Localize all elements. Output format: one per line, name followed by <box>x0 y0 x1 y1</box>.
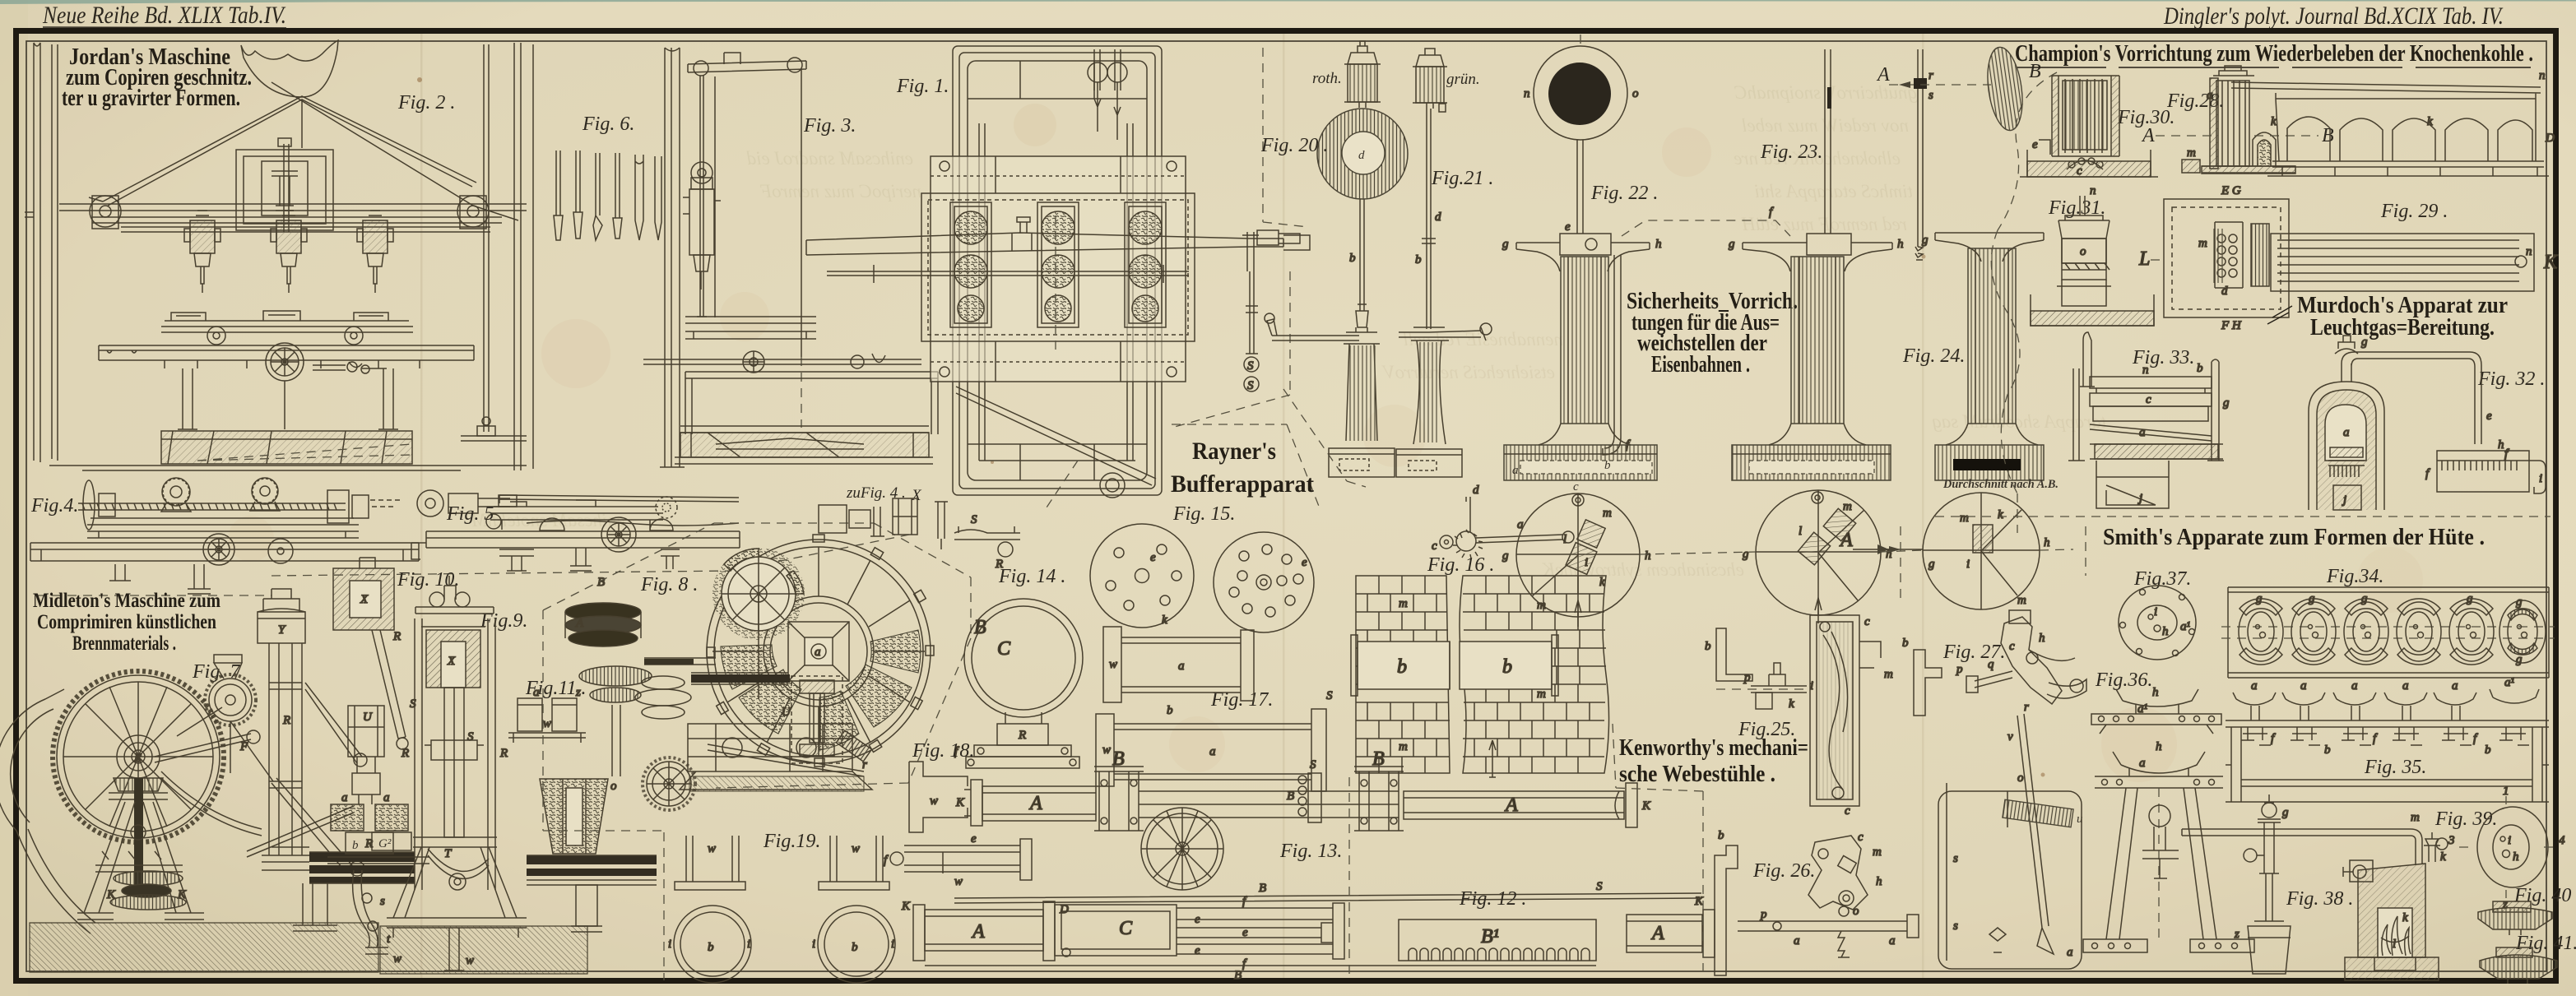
svg-text:e: e <box>2486 410 2492 423</box>
svg-text:sche Webestühle .: sche Webestühle . <box>1619 762 1775 787</box>
svg-text:a: a <box>533 686 540 699</box>
svg-text:g: g <box>2361 592 2368 605</box>
svg-text:d: d <box>1358 149 1365 162</box>
svg-text:a: a <box>383 791 390 804</box>
svg-text:m: m <box>1843 500 1852 513</box>
svg-text:tarappA shcodruM sag: tarappA shcodruM sag <box>1932 411 2106 432</box>
svg-text:o: o <box>2080 245 2086 258</box>
svg-text:s: s <box>1953 920 1958 933</box>
svg-text:a: a <box>815 646 821 659</box>
svg-text:e: e <box>1565 220 1571 234</box>
svg-text:roth.: roth. <box>1312 70 1342 87</box>
svg-text:h: h <box>2513 850 2519 864</box>
svg-text:n: n <box>2090 184 2096 197</box>
svg-text:a¹: a¹ <box>2137 702 2148 716</box>
svg-text:Bufferapparat: Bufferapparat <box>1171 470 1314 498</box>
svg-text:K: K <box>901 900 911 913</box>
svg-text:m: m <box>1960 512 1969 525</box>
svg-text:m: m <box>1873 845 1882 859</box>
svg-text:Neue Reihe Bd. XLIX Tab.IV.: Neue Reihe Bd. XLIX Tab.IV. <box>42 2 286 29</box>
svg-text:Fig. 1.: Fig. 1. <box>896 76 949 97</box>
svg-text:d: d <box>1473 484 1479 497</box>
svg-text:Fig. 29 .: Fig. 29 . <box>2380 201 2448 222</box>
svg-text:m: m <box>1399 740 1408 753</box>
svg-text:g: g <box>2309 592 2315 605</box>
svg-text:p: p <box>1743 671 1751 684</box>
svg-text:S: S <box>971 513 977 526</box>
svg-text:neripoC muz nemroF: neripoC muz nemroF <box>759 181 921 202</box>
svg-text:Fig.4.: Fig.4. <box>30 495 78 517</box>
svg-text:E: E <box>133 752 142 765</box>
svg-text:Fig. 38 .: Fig. 38 . <box>2286 888 2353 910</box>
svg-text:A: A <box>1504 794 1518 816</box>
svg-text:i: i <box>812 938 815 951</box>
svg-text:K: K <box>106 888 116 901</box>
svg-text:g: g <box>2256 592 2263 605</box>
svg-text:b: b <box>708 941 714 954</box>
svg-text:b: b <box>1502 656 1512 678</box>
svg-text:i: i <box>2508 834 2511 847</box>
svg-text:F H: F H <box>2221 319 2242 332</box>
svg-text:b: b <box>1705 640 1711 653</box>
svg-text:Fig.19.: Fig.19. <box>763 831 820 852</box>
svg-text:a: a <box>1794 934 1800 947</box>
svg-text:a: a <box>2139 757 2146 770</box>
svg-text:a¹: a¹ <box>2180 620 2191 633</box>
svg-text:Rayner's: Rayner's <box>1192 438 1276 465</box>
svg-text:e: e <box>1150 551 1156 564</box>
svg-text:b: b <box>352 839 359 852</box>
svg-text:w: w <box>1109 658 1117 671</box>
svg-text:ter u gravirter Formen.: ter u gravirter Formen. <box>62 86 240 111</box>
svg-text:c: c <box>1864 615 1870 628</box>
svg-text:Fig. 2 .: Fig. 2 . <box>397 92 455 113</box>
svg-text:K: K <box>2543 252 2559 273</box>
svg-text:S: S <box>1310 758 1316 771</box>
svg-text:A: A <box>1876 64 1890 86</box>
svg-text:o: o <box>1853 905 1859 918</box>
svg-text:i: i <box>1585 556 1588 569</box>
svg-text:a: a <box>341 791 348 804</box>
svg-text:S: S <box>467 730 474 744</box>
svg-text:i: i <box>891 938 894 951</box>
svg-text:Fig. 10.: Fig. 10. <box>397 569 459 591</box>
svg-text:i: i <box>668 938 671 951</box>
svg-text:g: g <box>2282 806 2289 819</box>
svg-text:k: k <box>1998 508 2003 521</box>
svg-text:i: i <box>1810 679 1813 693</box>
svg-text:n: n <box>2539 69 2546 82</box>
svg-text:w: w <box>466 954 474 967</box>
svg-text:v: v <box>2007 730 2013 744</box>
svg-text:e: e <box>1242 926 1248 939</box>
svg-text:Fig. 13.: Fig. 13. <box>1279 841 1342 862</box>
svg-text:b: b <box>1397 656 1407 678</box>
svg-text:Fig. 27.: Fig. 27. <box>1942 642 2005 663</box>
svg-text:1: 1 <box>2503 785 2509 798</box>
svg-text:etsiehrehciS nerutrroV: etsiehrehciS nerutrroV <box>1381 362 1555 382</box>
svg-text:l: l <box>1799 525 1802 538</box>
svg-text:g: g <box>2516 653 2523 666</box>
svg-text:a¹: a¹ <box>2504 676 2515 689</box>
svg-text:g: g <box>1929 558 1935 571</box>
svg-text:w: w <box>393 952 401 966</box>
svg-text:red nemroF muz etüH: red nemroF muz etüH <box>1741 214 1907 234</box>
svg-text:B: B <box>974 617 986 638</box>
svg-text:w: w <box>930 794 938 808</box>
svg-text:c: c <box>1845 804 1850 818</box>
svg-text:g: g <box>2467 592 2473 605</box>
svg-text:e: e <box>1195 944 1200 957</box>
svg-text:p: p <box>1956 663 1963 676</box>
svg-text:g: g <box>2223 396 2230 410</box>
svg-text:c: c <box>1432 540 1437 553</box>
svg-text:m: m <box>2017 594 2026 607</box>
svg-text:Fig. 22 .: Fig. 22 . <box>1590 183 1658 204</box>
svg-text:n: n <box>1524 87 1530 100</box>
svg-text:4: 4 <box>2559 834 2565 847</box>
svg-text:Fig. 12 .: Fig. 12 . <box>1459 888 1526 910</box>
svg-text:B: B <box>1259 882 1266 895</box>
svg-text:m: m <box>1603 507 1612 520</box>
svg-text:h: h <box>1655 238 1662 251</box>
svg-text:k: k <box>1789 697 1794 711</box>
svg-text:r: r <box>1929 69 1933 82</box>
svg-text:A: A <box>1028 793 1042 814</box>
svg-text:b: b <box>1349 252 1356 265</box>
svg-text:Fig.36.: Fig.36. <box>2095 669 2152 691</box>
svg-text:b: b <box>852 941 858 954</box>
svg-text:d: d <box>2221 285 2228 298</box>
svg-text:Fig. 18.: Fig. 18. <box>912 740 974 762</box>
svg-text:i: i <box>747 938 750 951</box>
svg-text:k: k <box>2427 115 2433 128</box>
svg-text:a: a <box>1178 660 1185 673</box>
svg-text:Fig. 3.: Fig. 3. <box>803 115 856 137</box>
svg-text:g: g <box>1502 238 1509 251</box>
svg-text:q: q <box>1988 658 1994 671</box>
svg-text:S: S <box>1247 359 1254 373</box>
svg-text:A: A <box>2141 125 2155 146</box>
svg-text:h: h <box>2156 740 2162 753</box>
svg-text:e: e <box>971 832 977 845</box>
svg-text:U: U <box>782 706 791 719</box>
svg-text:D: D <box>2545 132 2555 145</box>
svg-text:Fig. 32 .: Fig. 32 . <box>2477 368 2545 390</box>
svg-text:A: A <box>1650 923 1664 944</box>
svg-text:g: g <box>1729 238 1735 251</box>
svg-text:Fig. 23.: Fig. 23. <box>1760 141 1822 163</box>
svg-text:e: e <box>2032 138 2038 151</box>
svg-text:G²: G² <box>378 837 392 850</box>
svg-text:a: a <box>2452 679 2458 693</box>
svg-text:h: h <box>2039 632 2045 645</box>
svg-text:Dingler's polyt. Journal Bd.X: Dingler's polyt. Journal Bd.XCIX Tab. IV… <box>2163 2 2504 30</box>
svg-text:k: k <box>2402 911 2408 924</box>
svg-text:K: K <box>1694 895 1704 908</box>
svg-text:h: h <box>1645 549 1651 563</box>
svg-text:h: h <box>1897 238 1904 251</box>
svg-text:n: n <box>2142 364 2149 377</box>
svg-text:a: a <box>1889 934 1896 947</box>
svg-text:Fig. 35.: Fig. 35. <box>2364 757 2426 778</box>
svg-text:h: h <box>2498 438 2504 452</box>
svg-text:b: b <box>2324 744 2331 757</box>
svg-text:e: e <box>1302 556 1307 569</box>
svg-text:k: k <box>2271 115 2277 128</box>
svg-text:R: R <box>1018 729 1026 742</box>
svg-text:a: a <box>2207 89 2213 102</box>
svg-text:b: b <box>2197 362 2203 375</box>
svg-text:S: S <box>410 697 416 711</box>
svg-text:Durchschnitt nach A.B.: Durchschnitt nach A.B. <box>1942 478 2058 491</box>
svg-text:z: z <box>575 686 581 699</box>
svg-text:c: c <box>1858 831 1864 844</box>
svg-text:a: a <box>2343 426 2350 439</box>
svg-text:U: U <box>363 711 373 724</box>
svg-text:a: a <box>2351 679 2358 693</box>
svg-text:w: w <box>708 842 716 855</box>
svg-text:R: R <box>392 630 401 643</box>
svg-text:r: r <box>2024 701 2029 714</box>
svg-text:l: l <box>2393 938 2396 951</box>
svg-text:g: g <box>1743 548 1749 561</box>
svg-text:C: C <box>1119 918 1133 939</box>
svg-text:L: L <box>2138 248 2150 270</box>
svg-text:E G: E G <box>2221 184 2241 197</box>
svg-text:h: h <box>1876 875 1882 888</box>
svg-text:c: c <box>2077 164 2082 178</box>
svg-text:m: m <box>1537 599 1546 612</box>
svg-text:h: h <box>2162 625 2169 638</box>
svg-text:Fig. 6.: Fig. 6. <box>582 113 634 135</box>
svg-text:k: k <box>2440 850 2446 864</box>
svg-text:enihcsaM snadroJ eid: enihcsaM snadroJ eid <box>746 148 913 169</box>
svg-text:w: w <box>852 842 860 855</box>
svg-text:K: K <box>177 888 187 901</box>
svg-text:timhcS etarappA shti: timhcS etarappA shti <box>1754 181 1913 202</box>
svg-text:w: w <box>543 717 551 730</box>
svg-text:a: a <box>2139 426 2146 439</box>
svg-text:Midleton's Maschine zum: Midleton's Maschine zum <box>33 590 220 612</box>
svg-text:R: R <box>282 714 290 727</box>
svg-text:Smith's Apparate zum Formen de: Smith's Apparate zum Formen der Hüte . <box>2103 525 2485 550</box>
svg-text:s: s <box>380 895 385 908</box>
svg-text:B: B <box>2322 125 2334 146</box>
svg-text:A: A <box>575 617 584 630</box>
svg-text:S: S <box>1326 689 1333 702</box>
svg-text:m: m <box>2198 237 2207 250</box>
svg-text:m: m <box>2411 811 2420 824</box>
svg-text:a: a <box>2300 679 2307 693</box>
svg-text:grün.: grün. <box>1446 71 1480 88</box>
svg-text:Fig. 26.: Fig. 26. <box>1752 860 1815 882</box>
svg-text:h: h <box>2152 686 2159 699</box>
svg-text:g: g <box>2361 336 2368 349</box>
svg-text:K: K <box>955 796 965 809</box>
svg-text:Brennmaterials .: Brennmaterials . <box>72 632 176 655</box>
svg-text:a: a <box>1512 464 1519 477</box>
svg-text:Eisenbahnen .: Eisenbahnen . <box>1651 352 1750 378</box>
svg-text:R: R <box>401 747 409 760</box>
svg-text:S: S <box>1596 880 1603 893</box>
svg-text:Leuchtgas=Bereitung.: Leuchtgas=Bereitung. <box>2310 315 2495 340</box>
svg-text:o: o <box>2017 771 2024 785</box>
svg-text:S: S <box>1247 379 1254 392</box>
svg-text:w: w <box>1102 744 1111 757</box>
svg-text:a: a <box>2251 679 2258 693</box>
svg-text:K: K <box>1641 799 1651 813</box>
svg-text:a: a <box>2402 679 2409 693</box>
svg-text:m: m <box>2187 146 2196 160</box>
svg-text:B: B <box>1234 969 1242 982</box>
svg-text:X: X <box>360 593 369 606</box>
svg-text:s: s <box>1929 89 1933 102</box>
svg-text:g: g <box>1922 234 1929 247</box>
svg-text:A: A <box>1839 530 1853 551</box>
svg-text:B: B <box>1287 790 1294 803</box>
svg-text:B: B <box>1112 748 1125 770</box>
svg-text:b: b <box>1718 829 1724 842</box>
svg-text:b: b <box>1415 253 1422 266</box>
svg-text:o: o <box>610 780 617 793</box>
svg-text:d: d <box>1435 211 1441 224</box>
svg-text:R: R <box>499 747 508 760</box>
svg-text:r: r <box>862 758 867 771</box>
svg-text:zuFig. 4 .: zuFig. 4 . <box>846 484 906 502</box>
svg-text:a: a <box>1209 745 1216 758</box>
svg-text:s: s <box>1953 852 1958 865</box>
svg-text:Fig.25.: Fig.25. <box>1738 719 1795 740</box>
svg-text:i: i <box>2154 605 2157 618</box>
svg-text:Fig. 33.: Fig. 33. <box>2132 347 2194 368</box>
svg-text:b: b <box>2485 744 2491 757</box>
svg-text:e: e <box>1195 913 1200 926</box>
svg-text:3: 3 <box>2448 834 2455 847</box>
svg-text:g: g <box>2516 595 2523 609</box>
svg-text:b: b <box>1902 637 1909 650</box>
svg-text:w: w <box>954 875 963 888</box>
svg-text:Fig.21 .: Fig.21 . <box>1431 168 1493 189</box>
svg-text:A: A <box>971 921 985 943</box>
svg-text:Champion's Vorrichtung zum Wi: Champion's Vorrichtung zum Wiederbeleben… <box>2015 41 2533 67</box>
svg-text:h: h <box>2044 536 2050 549</box>
svg-text:Fig. 5: Fig. 5 <box>446 503 494 525</box>
svg-text:m: m <box>1884 668 1893 681</box>
svg-text:Fig. 16 .: Fig. 16 . <box>1427 554 1494 576</box>
svg-text:b: b <box>1604 459 1611 472</box>
svg-text:k: k <box>1162 614 1167 627</box>
svg-text:l: l <box>1563 533 1566 546</box>
svg-text:a: a <box>2067 946 2073 959</box>
svg-text:B: B <box>597 576 605 589</box>
svg-text:p: p <box>1760 908 1767 921</box>
svg-text:c: c <box>1573 480 1579 493</box>
svg-text:m: m <box>1399 597 1408 610</box>
svg-text:B¹: B¹ <box>1481 926 1499 947</box>
svg-text:C: C <box>997 638 1011 660</box>
svg-text:i: i <box>1966 558 1970 571</box>
svg-text:g: g <box>1502 549 1509 563</box>
svg-text:X: X <box>447 655 456 668</box>
svg-text:o: o <box>1632 87 1639 100</box>
svg-text:Comprimiren künstlichen: Comprimiren künstlichen <box>37 611 216 633</box>
svg-text:z: z <box>2234 928 2239 941</box>
svg-text:c: c <box>2009 640 2015 653</box>
svg-text:Fig. 24.: Fig. 24. <box>1902 345 1965 367</box>
svg-text:X: X <box>911 487 922 504</box>
svg-text:i: i <box>2539 472 2542 485</box>
svg-text:Fig. 8 .: Fig. 8 . <box>640 574 698 595</box>
svg-text:Fig.34.: Fig.34. <box>2326 566 2383 587</box>
svg-text:Fig. 15.: Fig. 15. <box>1172 503 1235 525</box>
svg-text:b: b <box>1167 704 1173 717</box>
svg-text:R: R <box>364 837 373 850</box>
svg-text:Fig. 14 .: Fig. 14 . <box>998 566 1065 587</box>
svg-text:n: n <box>2526 245 2532 258</box>
svg-text:c: c <box>2146 393 2151 406</box>
